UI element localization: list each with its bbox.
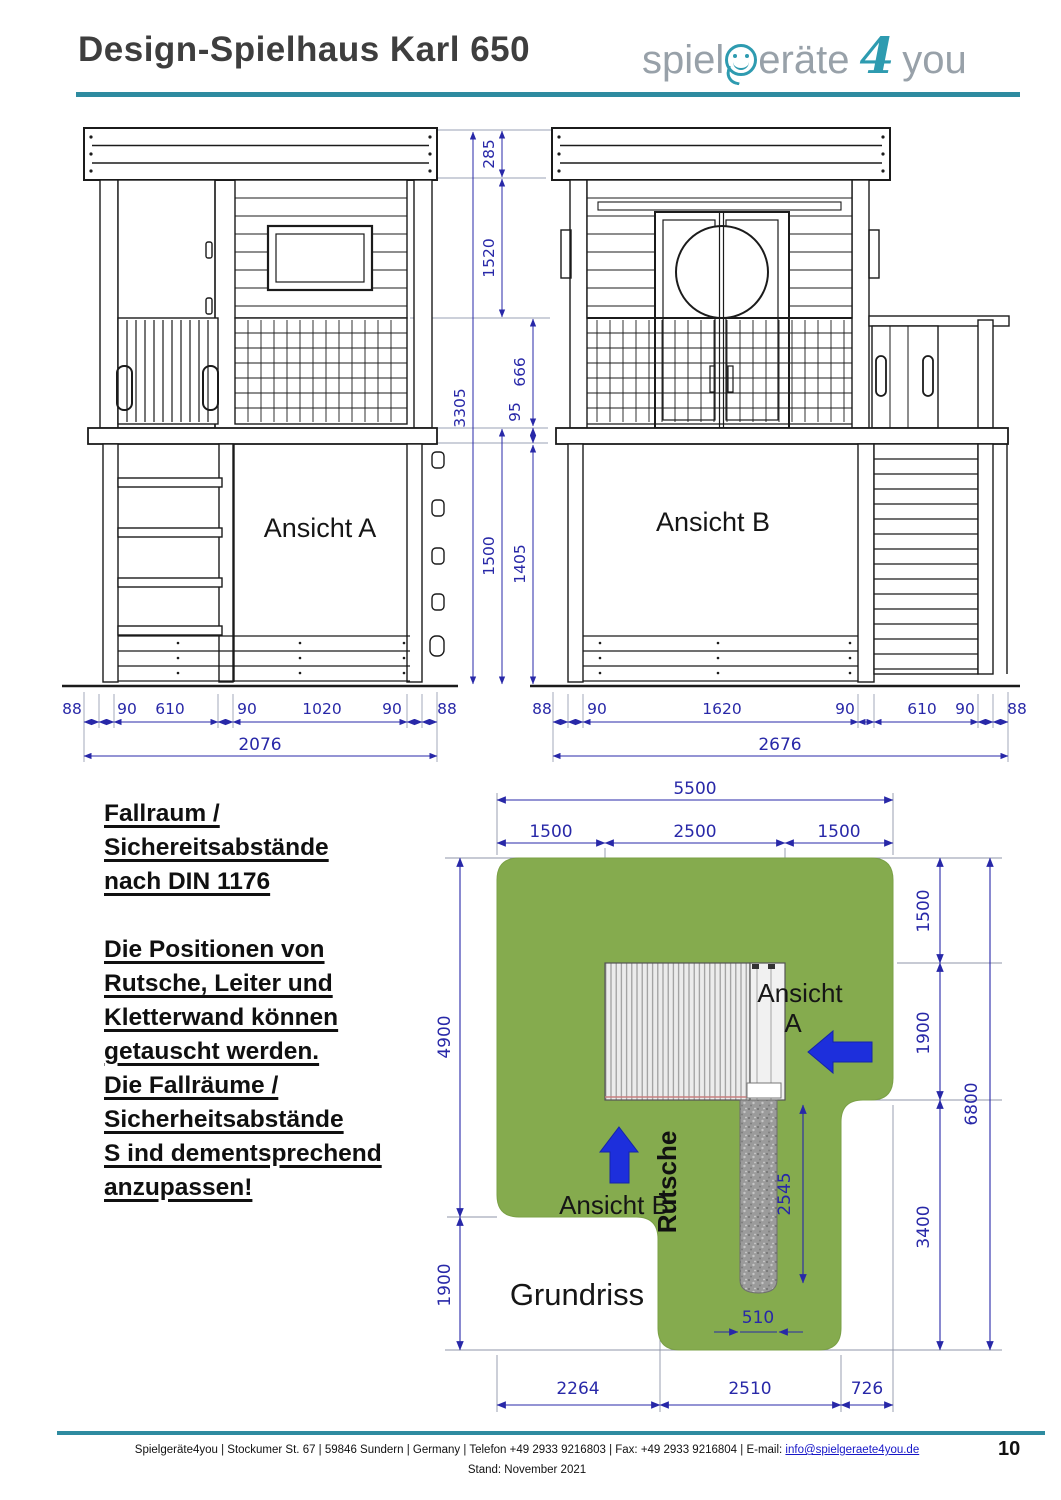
dim-railing-height: 666: [511, 357, 529, 387]
dim-a-width: 90: [382, 700, 402, 718]
footer-divider: [57, 1431, 1045, 1435]
board-screws-b: [599, 642, 852, 675]
dim-b-width: 90: [835, 700, 855, 718]
view-a-label: Ansicht A: [264, 513, 377, 543]
footer-address-line: Spielgeräte4you | Stockumer St. 67 | 598…: [0, 1444, 1054, 1456]
dim-lower-inner-height: 1405: [511, 544, 529, 583]
elevation-view-a: Ansicht A: [62, 128, 458, 686]
header-divider: [76, 92, 1020, 97]
dim-plan-right: 1900: [914, 1011, 934, 1054]
dim-plan-left: 4900: [435, 1015, 455, 1058]
plan-view-a-label-line1: Ansicht: [757, 978, 843, 1008]
dim-roof-height: 285: [480, 139, 498, 169]
dim-b-width: 90: [587, 700, 607, 718]
dim-b-width: 90: [955, 700, 975, 718]
dim-plan-left: 1900: [435, 1263, 455, 1306]
footer-address-text: Spielgeräte4you | Stockumer St. 67 | 598…: [135, 1444, 786, 1456]
dim-plan-total-width: 5500: [673, 779, 716, 799]
brand-logo: spieleräte4you: [642, 26, 1032, 85]
dim-b-width: 88: [1007, 700, 1027, 718]
logo-text-post: eräte: [758, 38, 849, 82]
dim-a-width: 88: [62, 700, 82, 718]
dim-plan-right-total: 6800: [962, 1082, 982, 1125]
dim-lower-height: 1500: [480, 536, 498, 575]
dim-b-width: 88: [532, 700, 552, 718]
dim-b-width: 1620: [702, 700, 741, 718]
ladder: [118, 478, 222, 635]
slide-footprint: [740, 1100, 777, 1293]
plan-view-a-label-line2: A: [784, 1008, 802, 1038]
dim-platform-height: 95: [506, 402, 524, 422]
climbing-wall: [874, 444, 1007, 674]
window-a: [268, 226, 372, 290]
dim-a-width: 90: [117, 700, 137, 718]
dim-a-width: 1020: [302, 700, 341, 718]
porthole-window: [676, 226, 768, 318]
dim-plan-bottom: 2264: [556, 1379, 599, 1399]
logo-text-you: you: [902, 38, 967, 82]
dim-b-total-width: 2676: [758, 735, 801, 755]
logo-text-pre: spiel: [642, 38, 724, 82]
slide-label: Rutsche: [652, 1131, 682, 1234]
dim-plan-top: 1500: [817, 822, 860, 842]
side-window: [869, 230, 879, 278]
dim-b-width: 610: [907, 700, 937, 718]
climbing-holds: [430, 452, 444, 656]
logo-smiley-icon: [725, 44, 757, 76]
dim-upper-height: 1520: [480, 238, 498, 277]
dim-plan-right: 1500: [914, 889, 934, 932]
elevation-drawings: Ansicht A: [0, 110, 1061, 770]
dim-plan-bottom: 726: [851, 1379, 883, 1399]
board-screws-a: [177, 642, 406, 675]
dim-a-width: 88: [437, 700, 457, 718]
logo-number-4: 4: [859, 26, 894, 85]
footer-email-link[interactable]: info@spielgeraete4you.de: [785, 1444, 919, 1456]
datasheet-page: Design-Spielhaus Karl 650 spieleräte4you: [0, 0, 1061, 1500]
dim-slide-length: 2545: [775, 1172, 795, 1215]
page-number: 10: [998, 1438, 1020, 1461]
view-b-label: Ansicht B: [656, 507, 770, 537]
dim-slide-width: 510: [742, 1308, 774, 1328]
plan-title: Grundriss: [510, 1277, 644, 1312]
dim-a-width: 90: [237, 700, 257, 718]
dim-a-width: 610: [155, 700, 185, 718]
elevation-view-b: Ansicht B: [530, 128, 1020, 686]
page-title: Design-Spielhaus Karl 650: [78, 30, 530, 70]
dim-plan-top: 2500: [673, 822, 716, 842]
dim-a-total-width: 2076: [238, 735, 281, 755]
dim-total-height: 3305: [451, 388, 469, 427]
dim-plan-right: 3400: [914, 1205, 934, 1248]
floor-plan: 5500 1500 2500 1500 4900 1900 1500 1900 …: [0, 770, 1061, 1450]
dim-plan-top: 1500: [529, 822, 572, 842]
dim-plan-bottom: 2510: [728, 1379, 771, 1399]
footer-date-line: Stand: November 2021: [0, 1464, 1054, 1476]
